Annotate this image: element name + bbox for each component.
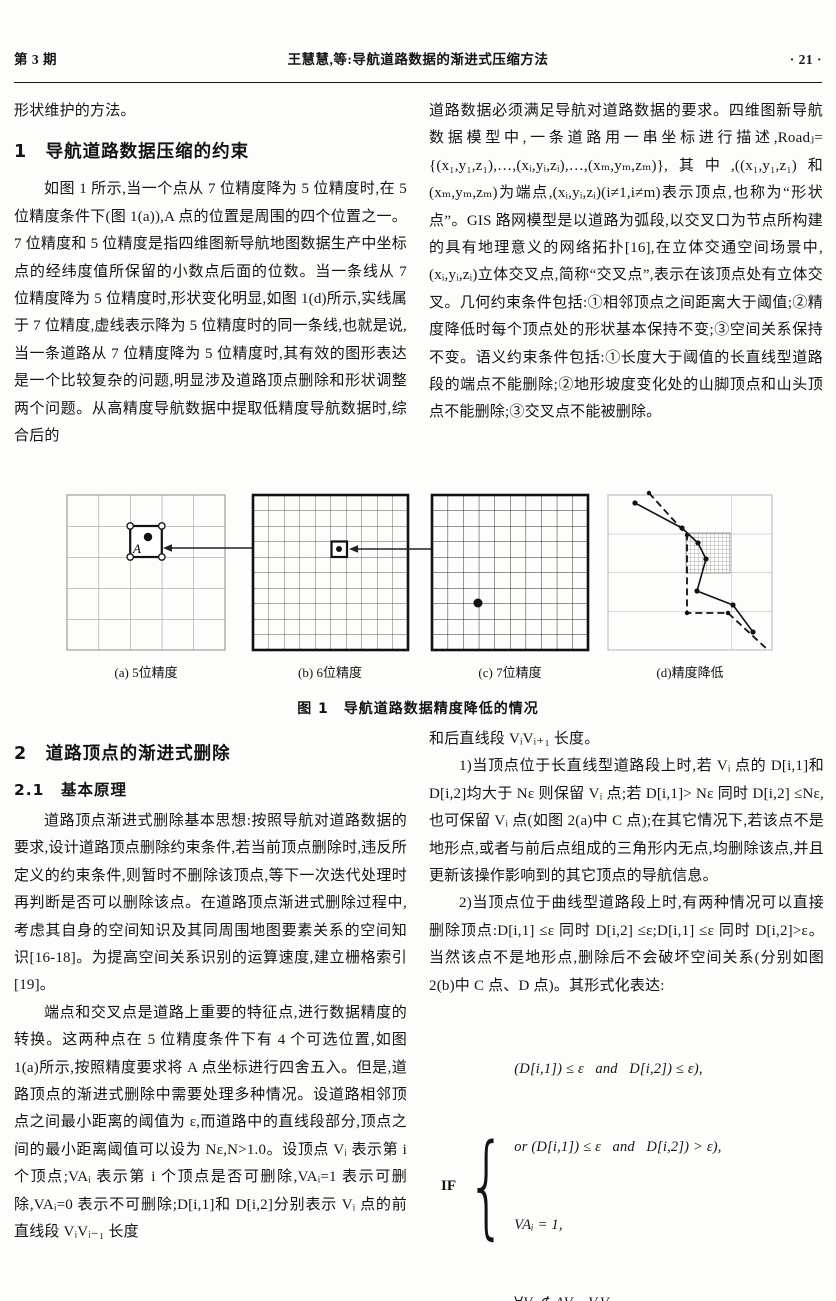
subcaption-d: (d)精度降低	[656, 662, 723, 681]
header-running-title: 王慧慧,等:导航道路数据的渐进式压缩方法	[124, 48, 712, 68]
candidate-corner-icon	[127, 523, 133, 529]
equation-1: IF { (D[i,1]) ≤ ε and D[i,2]) ≤ ε), or (…	[429, 1004, 824, 1301]
case-2-paragraph: 2)当顶点位于曲线型道路段上时,有两种情况可以直接删除顶点:D[i,1] ≤ε …	[429, 890, 824, 1000]
header-issue: 第 3 期	[14, 48, 124, 68]
left-column-top: 形状维护的方法。 1 导航道路数据压缩的约束 如图 1 所示,当一个点从 7 位…	[14, 98, 407, 450]
equation-line-2: or (D[i,1]) ≤ ε and D[i,2]) > ε),	[514, 1134, 721, 1160]
point-dot	[336, 546, 342, 552]
right-column-bottom: 和后直线段 VᵢVᵢ₊₁ 长度。 1)当顶点位于长直线型道路段上时,若 Vᵢ 点…	[429, 726, 824, 1301]
point-dot	[474, 599, 483, 608]
candidate-corner-icon	[159, 554, 165, 560]
grid-6digit	[253, 495, 408, 650]
header-rule	[14, 82, 822, 83]
point-a-label: A	[132, 541, 141, 556]
right-column-top: 道路数据必须满足导航对道路数据的要求。四维图新导航数据模型中,一条道路用一串坐标…	[429, 98, 823, 427]
page-header: 第 3 期 王慧慧,等:导航道路数据的渐进式压缩方法 · 21 ·	[14, 48, 822, 68]
paper-page: 第 3 期 王慧慧,等:导航道路数据的渐进式压缩方法 · 21 · 形状维护的方…	[0, 0, 836, 1301]
figure1-panel-d	[608, 491, 772, 650]
figure1-panel-b	[253, 495, 408, 650]
continuation-paragraph: 形状维护的方法。	[14, 98, 407, 125]
continuation-line: 和后直线段 VᵢVᵢ₊₁ 长度。	[429, 726, 824, 753]
section-1-paragraph: 如图 1 所示,当一个点从 7 位精度降为 5 位精度时,在 5 位精度条件下(…	[14, 176, 407, 450]
section-2-paragraph-1: 道路顶点渐进式删除基本思想:按照导航对道路数据的要求,设计道路顶点删除约束条件,…	[14, 808, 407, 1000]
point-dot	[144, 533, 152, 541]
subcaption-a: (a) 5位精度	[114, 662, 177, 681]
figure-1: A	[55, 490, 781, 652]
section-2-heading: 2 道路顶点的渐进式删除	[14, 742, 407, 766]
subsection-2-1-heading: 2.1 基本原理	[14, 780, 407, 800]
equation-line-1: (D[i,1]) ≤ ε and D[i,2]) ≤ ε),	[514, 1056, 721, 1082]
if-keyword: IF	[441, 1178, 456, 1195]
subcaption-b: (b) 6位精度	[298, 662, 362, 681]
section-1-paragraph-continued: 道路数据必须满足导航对道路数据的要求。四维图新导航数据模型中,一条道路用一串坐标…	[429, 98, 823, 427]
equation-line-3: VAᵢ = 1,	[514, 1212, 721, 1238]
equation-brace: {	[467, 1134, 506, 1238]
section-2-paragraph-2: 端点和交叉点是道路上重要的特征点,进行数据精度的转换。这两种点在 5 位精度条件…	[14, 1000, 407, 1247]
case-1-paragraph: 1)当顶点位于长直线型道路段上时,若 Vᵢ 点的 D[i,1]和 D[i,2]均…	[429, 753, 824, 890]
equation-conditions: (D[i,1]) ≤ ε and D[i,2]) ≤ ε), or (D[i,1…	[514, 1004, 721, 1301]
header-page-number: · 21 ·	[712, 52, 822, 68]
figure1-caption: 图 1 导航道路数据精度降低的情况	[0, 698, 836, 718]
grid-5digit	[67, 495, 225, 650]
left-column-bottom: 2 道路顶点的渐进式删除 2.1 基本原理 道路顶点渐进式删除基本思想:按照导航…	[14, 742, 407, 1247]
figure1-panel-c	[432, 495, 588, 650]
figure1-subcaptions: (a) 5位精度 (b) 6位精度 (c) 7位精度 (d)精度降低	[55, 662, 781, 682]
candidate-corner-icon	[159, 523, 165, 529]
grid-7digit	[432, 495, 588, 650]
equation-line-4: ∀Vⱼ ∉ ΔVᵢ₋₁VᵢVᵢ₊₁,	[514, 1290, 721, 1301]
subcaption-c: (c) 7位精度	[478, 662, 541, 681]
section-1-heading: 1 导航道路数据压缩的约束	[14, 140, 407, 164]
figure1-panel-a: A	[67, 495, 225, 650]
